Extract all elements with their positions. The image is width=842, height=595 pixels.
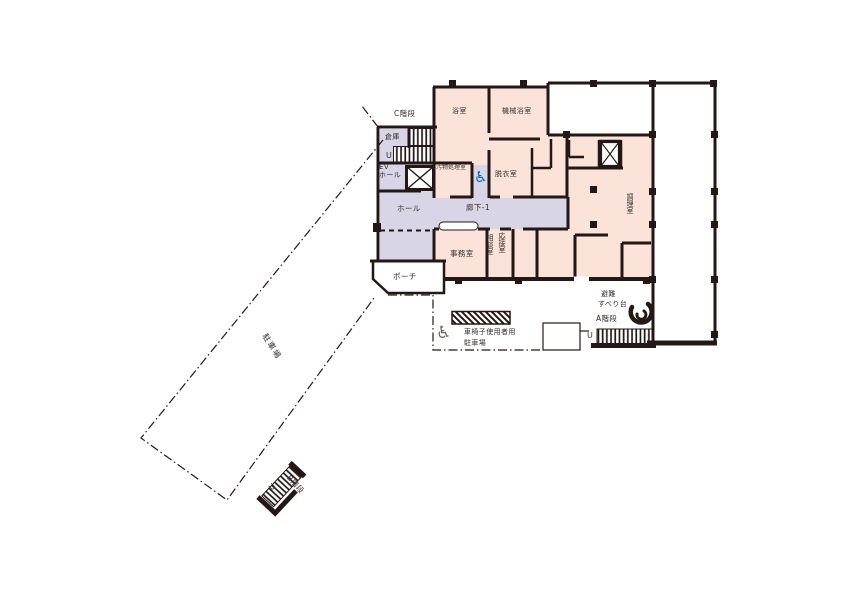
label-evac-line1: 避難 [601, 290, 616, 298]
label-ev-line2: ホール [379, 171, 401, 179]
wheelchair-parking-icon: ♿ [436, 325, 451, 342]
label-corridor: 廊下-1 [466, 204, 490, 213]
label-machine-bath: 機械浴室 [502, 107, 532, 115]
label-c-stairs: C階段 [394, 110, 415, 119]
label-dressing: 脱衣室 [495, 170, 517, 178]
label-bath: 浴室 [452, 107, 467, 115]
label-consult: 相談室 [486, 234, 493, 255]
label-reception: 応接室 [498, 232, 505, 253]
label-kitchen: 調理室 [626, 193, 633, 214]
wheelchair-accessible-icon: ♿ [474, 170, 487, 185]
c-stairs-lower-flight-icon [394, 147, 434, 163]
evacuation-slide-icon [631, 304, 652, 323]
c-stairs-upper-flight-icon [410, 129, 434, 146]
label-ev-line1: EV [379, 163, 389, 171]
label-storage: 倉庫 [385, 133, 400, 141]
parking-boundary [141, 140, 383, 500]
label-wc-parking-line1: 車椅子使用者用 [464, 328, 516, 336]
sliding-door-icon [439, 222, 478, 230]
label-a-stairs: A階段 [596, 315, 617, 324]
room-fill-upper-right-white [549, 85, 653, 135]
walls-heavy [591, 343, 717, 346]
floor-plan-page: C階段 倉庫 U EV ホール 浴室 機械浴室 汚物処理室 脱衣室 ホール 廊下… [0, 0, 842, 595]
door-opening [574, 277, 589, 283]
label-porch: ポーチ [393, 273, 417, 282]
canopy-square [543, 323, 580, 350]
label-up-c: U [386, 151, 392, 160]
label-up-a: U [587, 331, 593, 340]
label-wc-parking-line2: 駐車場 [464, 339, 486, 347]
a-stairs-icon [597, 329, 652, 344]
label-hall: ホール [397, 205, 421, 214]
wheelchair-parking-space-icon [452, 312, 510, 325]
label-office: 事務室 [450, 250, 474, 259]
boundary-segment-upper [362, 106, 378, 127]
label-waste-room: 汚物処理室 [436, 165, 466, 172]
floor-plan-drawing [0, 0, 842, 595]
label-evac-line2: すべり台 [598, 300, 627, 308]
